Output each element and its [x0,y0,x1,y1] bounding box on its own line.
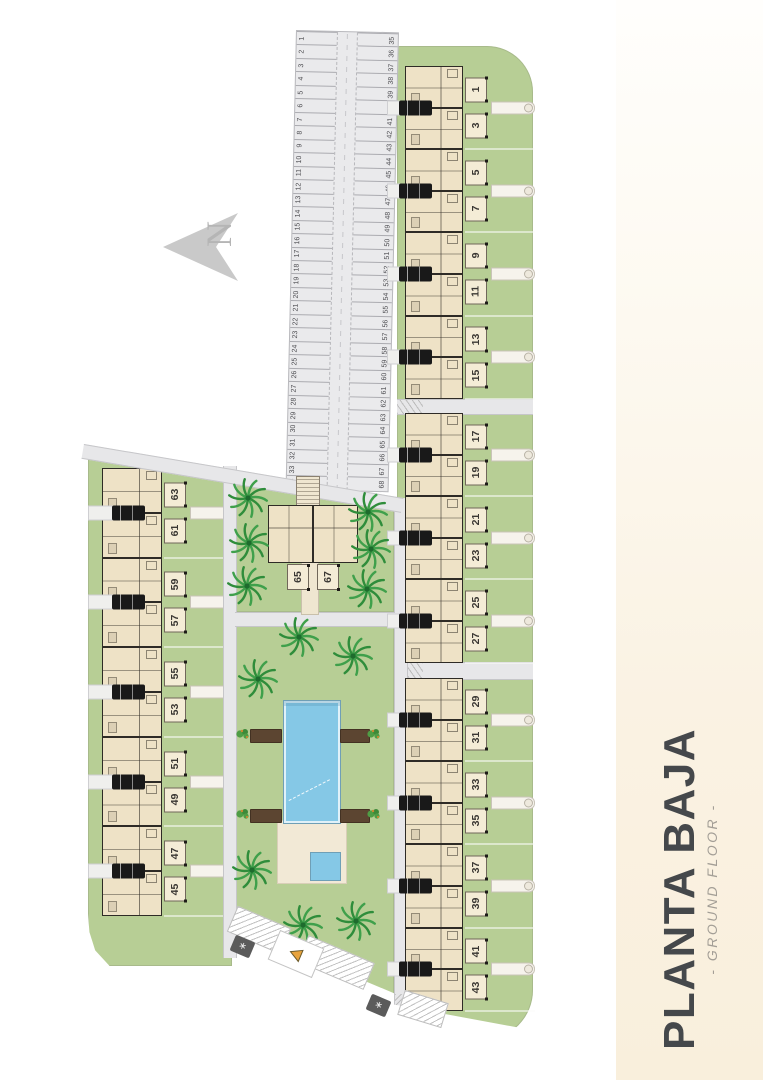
parking-space-number: 50 [384,238,391,247]
shrub-icon [236,727,250,745]
parking-space: 2 [296,44,336,58]
unit-number-label: 51 [164,751,186,776]
parking-space: 31 [288,435,328,449]
shrub-icon [367,727,381,745]
entry-path [491,448,535,461]
entry-path [491,879,535,892]
unit-number-label: 67 [317,564,339,590]
parking-space-number: 60 [381,372,388,381]
parking-space-number: 11 [296,168,303,177]
house-pair: 2123 [405,496,463,579]
unit-number: 59 [169,579,181,591]
north-label: N [198,221,240,247]
unit-number-label: 65 [287,564,309,590]
parking-space: 51 [353,248,393,262]
parking-space-number: 57 [382,332,389,341]
parking-space: 65 [348,436,388,450]
unit-number-label: 41 [465,939,487,964]
unit-number: 13 [470,333,482,345]
unit-number-label: 63 [164,482,186,507]
house-pair: 2931 [405,678,463,761]
parking-space-number: 42 [387,130,394,139]
lawn-divider [465,495,535,497]
parking-space-number: 20 [293,290,300,299]
parking-space: 36 [357,46,397,60]
unit-number-label: 5 [465,160,487,185]
parking-space-number: 45 [386,170,393,179]
parking-space-number: 19 [293,276,300,285]
unit-labels: 2527 [465,590,487,651]
lawn-divider [465,398,535,400]
unit-number: 51 [169,758,181,770]
parking-space-number: 31 [290,438,297,447]
lawn-divider [164,825,228,827]
unit-number-label: 31 [465,725,487,750]
unit-labels: 2931 [465,689,487,750]
unit-number-label: 29 [465,689,487,714]
parking-space: 39 [356,86,396,100]
parking-space: 32 [287,448,327,462]
unit-number: 21 [470,514,482,526]
carport [112,864,145,879]
unit-number-label: 7 [465,196,487,221]
parking-space: 16 [292,233,332,247]
parking-space: 45 [355,167,395,181]
carport [399,350,432,365]
lawn-divider [465,843,535,845]
lawn-divider [164,557,228,559]
unit-number: 63 [169,489,181,501]
parking-space: 56 [351,315,391,329]
parking-space-number: 55 [383,305,390,314]
parking-space: 27 [289,381,329,395]
page-title: PLANTA BAJA [658,728,702,1050]
unit-number: 27 [470,633,482,645]
parking-space: 38 [357,73,397,87]
lawn-divider [164,646,228,648]
parking-space: 20 [291,287,331,301]
lawn-divider [465,231,535,233]
parking-space-number: 8 [297,128,304,137]
parking-space-number: 39 [387,90,394,99]
lawn-divider [164,915,228,917]
parking-space: 67 [348,463,388,477]
center-building [268,505,358,563]
unit-number: 33 [470,779,482,791]
parking-space-number: 23 [292,330,299,339]
parking-space-number: 26 [291,370,298,379]
house-block: 13579111315 [405,66,463,399]
house-pair: 1315 [405,316,463,399]
unit-labels: 57 [465,160,487,221]
house-pair: 5957 [102,558,162,648]
parking-space-number: 28 [290,397,297,406]
site-marker-icon: ∗ [366,994,392,1018]
carport [399,712,432,727]
parking-space: 55 [352,302,392,316]
parking-space: 3 [296,58,336,72]
unit-number: 55 [169,668,181,680]
unit-labels: 5149 [164,751,186,812]
house-pair: 5149 [102,737,162,827]
parking-space-number: 47 [385,197,392,206]
page-subtitle: - GROUND FLOOR - [704,803,720,974]
parking-space: 62 [349,396,389,410]
entry-path [491,796,535,809]
unit-number: 53 [169,704,181,716]
unit-number: 37 [470,862,482,874]
parking-space: 5 [295,85,335,99]
shrub-icon [236,807,250,825]
parking-space: 48 [354,207,394,221]
entrance-warning-triangle-icon [286,944,307,965]
unit-number: 1 [470,87,482,93]
parking-space: 49 [353,221,393,235]
carport [399,530,432,545]
road-west [223,466,237,958]
unit-labels: 2123 [465,507,487,568]
lawn-divider [164,736,228,738]
unit-labels: 3739 [465,855,487,916]
unit-labels: 4143 [465,939,487,1000]
parking-space-number: 33 [289,465,296,474]
entry-path [491,713,535,726]
unit-number: 45 [169,883,181,895]
parking-space: 22 [290,314,330,328]
unit-labels: 4745 [164,841,186,902]
carport [399,100,432,115]
parking-space: 54 [352,288,392,302]
house-block: 63615957555351494745 [102,468,162,916]
parking-space-number: 66 [379,453,386,462]
parking-space-number: 37 [388,63,395,72]
unit-labels: 13 [465,77,487,138]
parking-space: 9 [294,139,334,153]
parking-space: 6 [295,98,335,112]
parking-space-number: 2 [298,47,305,56]
parking-space-number: 51 [384,251,391,260]
unit-labels: 5553 [164,661,186,722]
house-pair: 4745 [102,826,162,916]
parking-space: 66 [348,450,388,464]
parking-space: 33 [287,462,327,476]
unit-number: 39 [470,898,482,910]
parking-space: 14 [293,206,333,220]
unit-number: 31 [470,732,482,744]
parking-space: 58 [351,342,391,356]
unit-number: 29 [470,696,482,708]
unit-number-label: 33 [465,772,487,797]
unit-number: 19 [470,467,482,479]
entry-path [491,531,535,544]
north-indicator: N [158,205,268,295]
parking-space-number: 38 [388,76,395,85]
parking-space-number: 16 [294,236,301,245]
parking-space: 8 [295,125,335,139]
parking-space-number: 30 [290,424,297,433]
parking-space-number: 5 [297,88,304,97]
parking-space-number: 6 [297,101,304,110]
unit-number-label: 3 [465,113,487,138]
parking-space-number: 18 [294,263,301,272]
pergola [250,809,282,823]
parking-space-number: 54 [383,292,390,301]
parking-space-number: 62 [380,399,387,408]
unit-number-label: 11 [465,279,487,304]
unit-number-label: 15 [465,363,487,388]
unit-number: 7 [470,206,482,212]
parking-space: 25 [289,354,329,368]
parking-space: 17 [292,246,332,260]
unit-number-label: 35 [465,808,487,833]
unit-number: 61 [169,525,181,537]
parking-space-number: 43 [386,144,393,153]
parking-space-number: 12 [295,182,302,191]
carport [399,878,432,893]
unit-number: 5 [470,170,482,176]
unit-number-label: 21 [465,507,487,532]
parking-space-number: 22 [292,317,299,326]
lawn-divider [465,578,535,580]
house-pair: 57 [405,149,463,232]
unit-number: 47 [169,847,181,859]
parking-space: 43 [355,140,395,154]
parking-space-number: 49 [384,224,391,233]
pergola [340,729,370,743]
kids-pool [310,852,341,881]
unit-number-label: 45 [164,877,186,902]
carport [112,505,145,520]
house-pair: 6361 [102,468,162,558]
unit-number: 25 [470,597,482,609]
unit-labels: 5957 [164,572,186,633]
unit-number-label: 57 [164,608,186,633]
parking-space: 15 [292,220,332,234]
parking-space-number: 61 [381,386,388,395]
parking-space: 7 [295,112,335,126]
parking-space: 4 [296,71,336,85]
parking-space: 61 [350,383,390,397]
house-pair: 3739 [405,844,463,927]
unit-number: 3 [470,123,482,129]
parking-space: 12 [293,179,333,193]
unit-number-label: 37 [465,855,487,880]
parking-space: 10 [294,152,334,166]
parking-space-number: 14 [295,209,302,218]
parking-space: 18 [291,260,331,274]
carport [112,595,145,610]
shrub-icon [367,807,381,825]
parking-space: 37 [357,59,397,73]
parking-space-number: 32 [289,451,296,460]
unit-number-label: 47 [164,841,186,866]
parking-space: 35 [358,32,398,46]
unit-number-label: 59 [164,572,186,597]
unit-labels: 911 [465,243,487,304]
unit-labels: 1719 [465,424,487,485]
carport [399,795,432,810]
house-pair: 13 [405,66,463,149]
lawn-divider [465,148,535,150]
unit-number-label: 61 [164,518,186,543]
unit-number-label: 23 [465,543,487,568]
parking-space-number: 17 [294,249,301,258]
carport [399,183,432,198]
parking-space: 28 [288,395,328,409]
unit-number-label: 19 [465,460,487,485]
right-residential-band: 135791113151719212325272931333537394143 [397,46,533,1040]
parking-space-number: 36 [388,49,395,58]
unit-number-label: 43 [465,975,487,1000]
parking-space: 11 [294,166,334,180]
house-pair: 3335 [405,761,463,844]
parking-space: 26 [289,368,329,382]
lawn-divider [465,662,535,664]
pergola [340,809,370,823]
parking-space-number: 4 [298,74,305,83]
parking-space-number: 27 [291,384,298,393]
parking-space-number: 41 [387,117,394,126]
parking-space: 59 [350,356,390,370]
parking-space: 60 [350,369,390,383]
entry-path [491,614,535,627]
unit-labels: 6361 [164,482,186,543]
left-residential-band: 63615957555351494745 [88,444,232,966]
entry-path [491,267,535,280]
unit-number-label: 9 [465,243,487,268]
parking-space: 57 [351,329,391,343]
lawn-divider [465,315,535,317]
house-pair: 5553 [102,647,162,737]
parking-space: 30 [288,422,328,436]
unit-number-label: 25 [465,590,487,615]
lawn-divider [465,927,535,929]
parking-space-number: 1 [299,34,306,43]
house-unit [313,505,358,563]
parking-space: 42 [356,127,396,141]
parking-space-number: 68 [379,480,386,489]
unit-number-label: 49 [164,787,186,812]
unit-number-label: 1 [465,77,487,102]
parking-strip: 1234567891011121314151617181920212223242… [286,30,399,492]
parking-space-number: 21 [293,303,300,312]
parking-space: 24 [290,341,330,355]
parking-space: 13 [293,193,333,207]
parking-space-number: 48 [385,211,392,220]
unit-number-label: 55 [164,661,186,686]
unit-labels: 3335 [465,772,487,833]
unit-number-label: 17 [465,424,487,449]
lawn-divider [465,1010,535,1012]
house-block: 171921232527 [405,413,463,663]
parking-space-number: 24 [292,344,299,353]
parking-space: 19 [291,273,331,287]
unit-number-label: 53 [164,697,186,722]
unit-number-label: 27 [465,626,487,651]
parking-space-number: 56 [382,319,389,328]
parking-space-number: 7 [297,115,304,124]
parking-space-number: 3 [298,61,305,70]
parking-space: 41 [356,113,396,127]
parking-space-number: 64 [380,426,387,435]
parking-space: 50 [353,234,393,248]
unit-number: 15 [470,369,482,381]
parking-space-number: 65 [380,440,387,449]
parking-space-number: 10 [296,155,303,164]
parking-space-number: 25 [291,357,298,366]
carport [399,266,432,281]
parking-space: 63 [349,409,389,423]
parking-space-number: 44 [386,157,393,166]
parking-space: 64 [349,423,389,437]
unit-number: 43 [470,981,482,993]
unit-number: 57 [169,615,181,627]
unit-number: 9 [470,253,482,259]
unit-number-label: 13 [465,327,487,352]
parking-space: 1 [297,31,337,45]
carport [112,684,145,699]
site-plan-page: PLANTA BAJA - GROUND FLOOR - N 135791113… [0,0,763,1080]
house-pair: 2527 [405,579,463,662]
swimming-pool [283,700,341,824]
entry-path [491,184,535,197]
unit-number: 41 [470,945,482,957]
parking-space-number: 29 [290,411,297,420]
north-arrow-icon [158,205,268,295]
parking-space-number: 63 [380,413,387,422]
parking-space-number: 35 [389,36,396,45]
parking-space-number: 13 [295,195,302,204]
unit-number: 35 [470,815,482,827]
unit-labels: 1315 [465,327,487,388]
house-unit [268,505,313,563]
entry-path [491,101,535,114]
carport [399,447,432,462]
carport [112,774,145,789]
unit-number-label: 39 [465,891,487,916]
entry-path [491,963,535,976]
parking-space-number: 9 [296,142,303,151]
title-group: PLANTA BAJA - GROUND FLOOR - [646,728,732,1050]
carport [399,613,432,628]
parking-space-number: 15 [294,222,301,231]
unit-number: 49 [169,794,181,806]
parking-space: 21 [291,300,331,314]
house-pair: 911 [405,232,463,315]
unit-number: 23 [470,550,482,562]
parking-space: 44 [355,154,395,168]
parking-space: 23 [290,327,330,341]
parking-space: 29 [288,408,328,422]
parking-space-number: 67 [379,467,386,476]
house-block: 2931333537394143 [405,678,463,1011]
pergola [250,729,282,743]
unit-number: 17 [470,431,482,443]
house-pair: 1719 [405,413,463,496]
lawn-divider [465,760,535,762]
carport [399,962,432,977]
unit-number: 11 [470,286,482,297]
entry-path [491,351,535,364]
